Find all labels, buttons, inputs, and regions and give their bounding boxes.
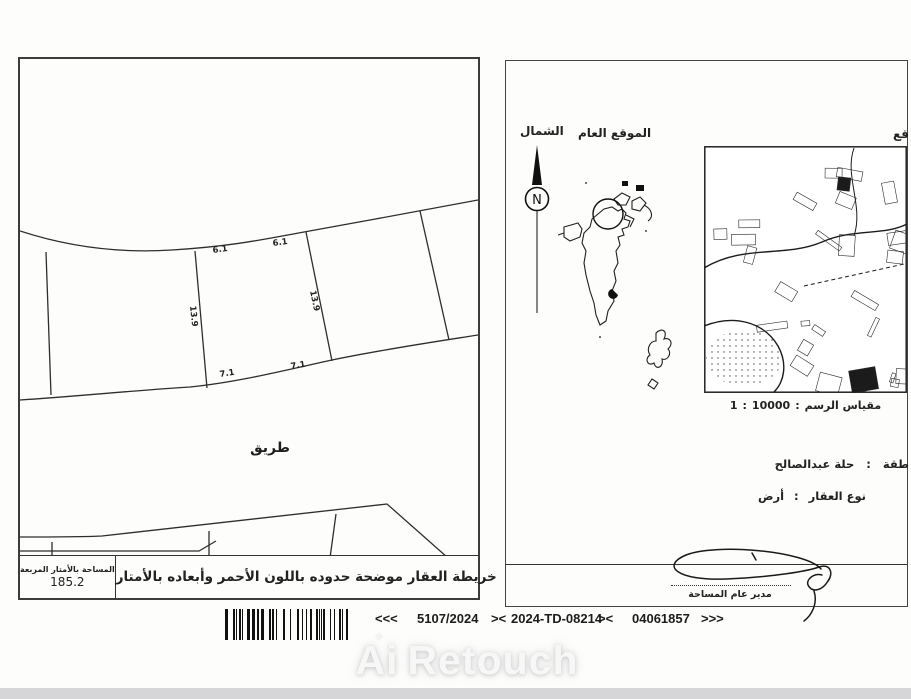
dimension-label-right-side: 13.9: [307, 290, 321, 313]
barcode-bar: [225, 609, 228, 640]
scale-label: مقياس الرسم: [805, 399, 882, 412]
footer-arrows-right: >>>: [701, 611, 724, 626]
lower-divider-2: [330, 514, 336, 555]
barcode-bar: [297, 609, 299, 640]
map-note-text: خريطة العقار موضحة حدوده باللون الأحمر و…: [116, 569, 497, 585]
barcode-bar: [319, 609, 320, 640]
barcode-bar: [272, 609, 274, 640]
city-block: [849, 367, 879, 393]
city-block: [837, 177, 851, 192]
area-label: المساحة بالأمتار المربعة: [20, 565, 115, 574]
signature-title: مدير عام المساحة: [666, 589, 794, 600]
property-type-line: نوع العقار : أرض: [758, 489, 866, 503]
general-location-label: الموقع العام: [578, 126, 651, 140]
north-label: الشمال: [520, 124, 564, 138]
signature-dot: [752, 553, 756, 560]
plot-footer-table: المساحة بالأمتار المربعة 185.2 خريطة الع…: [20, 555, 478, 598]
map-blob-1: [636, 185, 644, 191]
region-value: حلة عبدالصالح: [775, 457, 855, 471]
barcode-bar: [306, 609, 307, 640]
south-islands: [647, 330, 671, 389]
region-line: طقة : حلة عبدالصالح: [775, 457, 909, 471]
map-note-box: خريطة العقار موضحة حدوده باللون الأحمر و…: [116, 556, 497, 598]
scanned-survey-document: 6.1 6.1 13.9 13.9 7.1 7.1 طريق المساحة ب…: [0, 0, 911, 699]
barcode-bar: [261, 609, 264, 640]
lower-band-line: [20, 504, 456, 555]
scale-denominator: 10000: [752, 399, 790, 412]
dimension-label-top-2: 6.1: [272, 237, 288, 249]
scale-numerator: 1: [730, 399, 738, 412]
area-value: 185.2: [50, 575, 84, 589]
barcode-bar: [252, 609, 255, 640]
barcode-bar: [310, 609, 312, 640]
map-blob-3: [608, 289, 618, 299]
west-shore-polygon: [558, 223, 582, 241]
barcode-bar: [242, 609, 243, 640]
plot-lines-svg: 6.1 6.1 13.9 13.9 7.1 7.1 طريق: [20, 59, 478, 555]
serial-number: 04061857: [632, 611, 690, 626]
north-arrow-head: [532, 145, 542, 185]
map-blob-2: [622, 181, 628, 186]
stippled-area: [706, 330, 782, 386]
detail-map-canvas: [704, 146, 907, 393]
sparkle-icon: ✦: [374, 630, 385, 644]
barcode-bar: [257, 609, 259, 640]
property-type-separator: :: [794, 489, 799, 503]
barcode-bar: [316, 609, 318, 640]
barcode-bar: [233, 609, 235, 640]
footer-separator-b: ><: [598, 611, 613, 626]
property-type-value: أرض: [758, 489, 784, 503]
region-label-clipped: طقة: [883, 457, 909, 471]
speck-1: [585, 182, 587, 184]
scale-separator: :: [795, 399, 799, 412]
watermark-part-2: Retouch: [408, 637, 579, 684]
location-panel: الشمال N الموقع العام قع: [505, 60, 908, 607]
case-number: 5107/2024: [417, 611, 478, 626]
signature-dotted-line: [671, 585, 791, 586]
dimension-label-top-1: 6.1: [212, 244, 228, 256]
barcode-bar: [269, 609, 271, 640]
country-key-map: [556, 171, 706, 403]
parcel-divider-4: [420, 211, 449, 340]
scale-line: مقياس الرسم : 10000 : 1: [704, 399, 907, 412]
barcode-bar: [290, 609, 291, 640]
watermark: ✦ Ai Retouch: [322, 633, 612, 687]
speck-2: [645, 230, 647, 232]
barcode-bar: [302, 609, 303, 640]
speck-3: [599, 336, 601, 338]
barcode-bar: [239, 609, 241, 640]
clipped-location-word: قع: [893, 127, 909, 141]
footer-arrows-left: <<<: [375, 611, 398, 626]
dimension-label-bottom-1: 7.1: [219, 368, 236, 380]
parcel-band-top-line: [20, 200, 478, 251]
parcel-divider-1: [46, 252, 51, 395]
td-number: 2024-TD-08214: [511, 611, 602, 626]
property-type-label: نوع العقار: [809, 489, 866, 503]
plot-map-panel: 6.1 6.1 13.9 13.9 7.1 7.1 طريق المساحة ب…: [18, 57, 480, 600]
area-box: المساحة بالأمتار المربعة 185.2: [20, 556, 116, 598]
road-label: طريق: [250, 440, 290, 456]
bahrain-outline: [582, 207, 630, 325]
dimension-label-bottom-2: 7.1: [290, 360, 307, 372]
bottom-gray-bar: [0, 688, 911, 699]
lower-band-edge: [20, 541, 216, 551]
north-arrow-icon: N: [520, 141, 556, 321]
footer-separator-a: ><: [491, 611, 506, 626]
scale-separator-2: :: [743, 399, 747, 412]
dimension-label-left-side: 13.9: [187, 305, 199, 327]
region-separator: :: [866, 457, 871, 471]
barcode-bar: [283, 609, 285, 640]
compass-letter: N: [532, 193, 542, 208]
parcel-band-bottom-line: [20, 335, 478, 400]
barcode-bar: [247, 609, 250, 640]
barcode-bar: [236, 609, 237, 640]
barcode-bar: [276, 609, 277, 640]
